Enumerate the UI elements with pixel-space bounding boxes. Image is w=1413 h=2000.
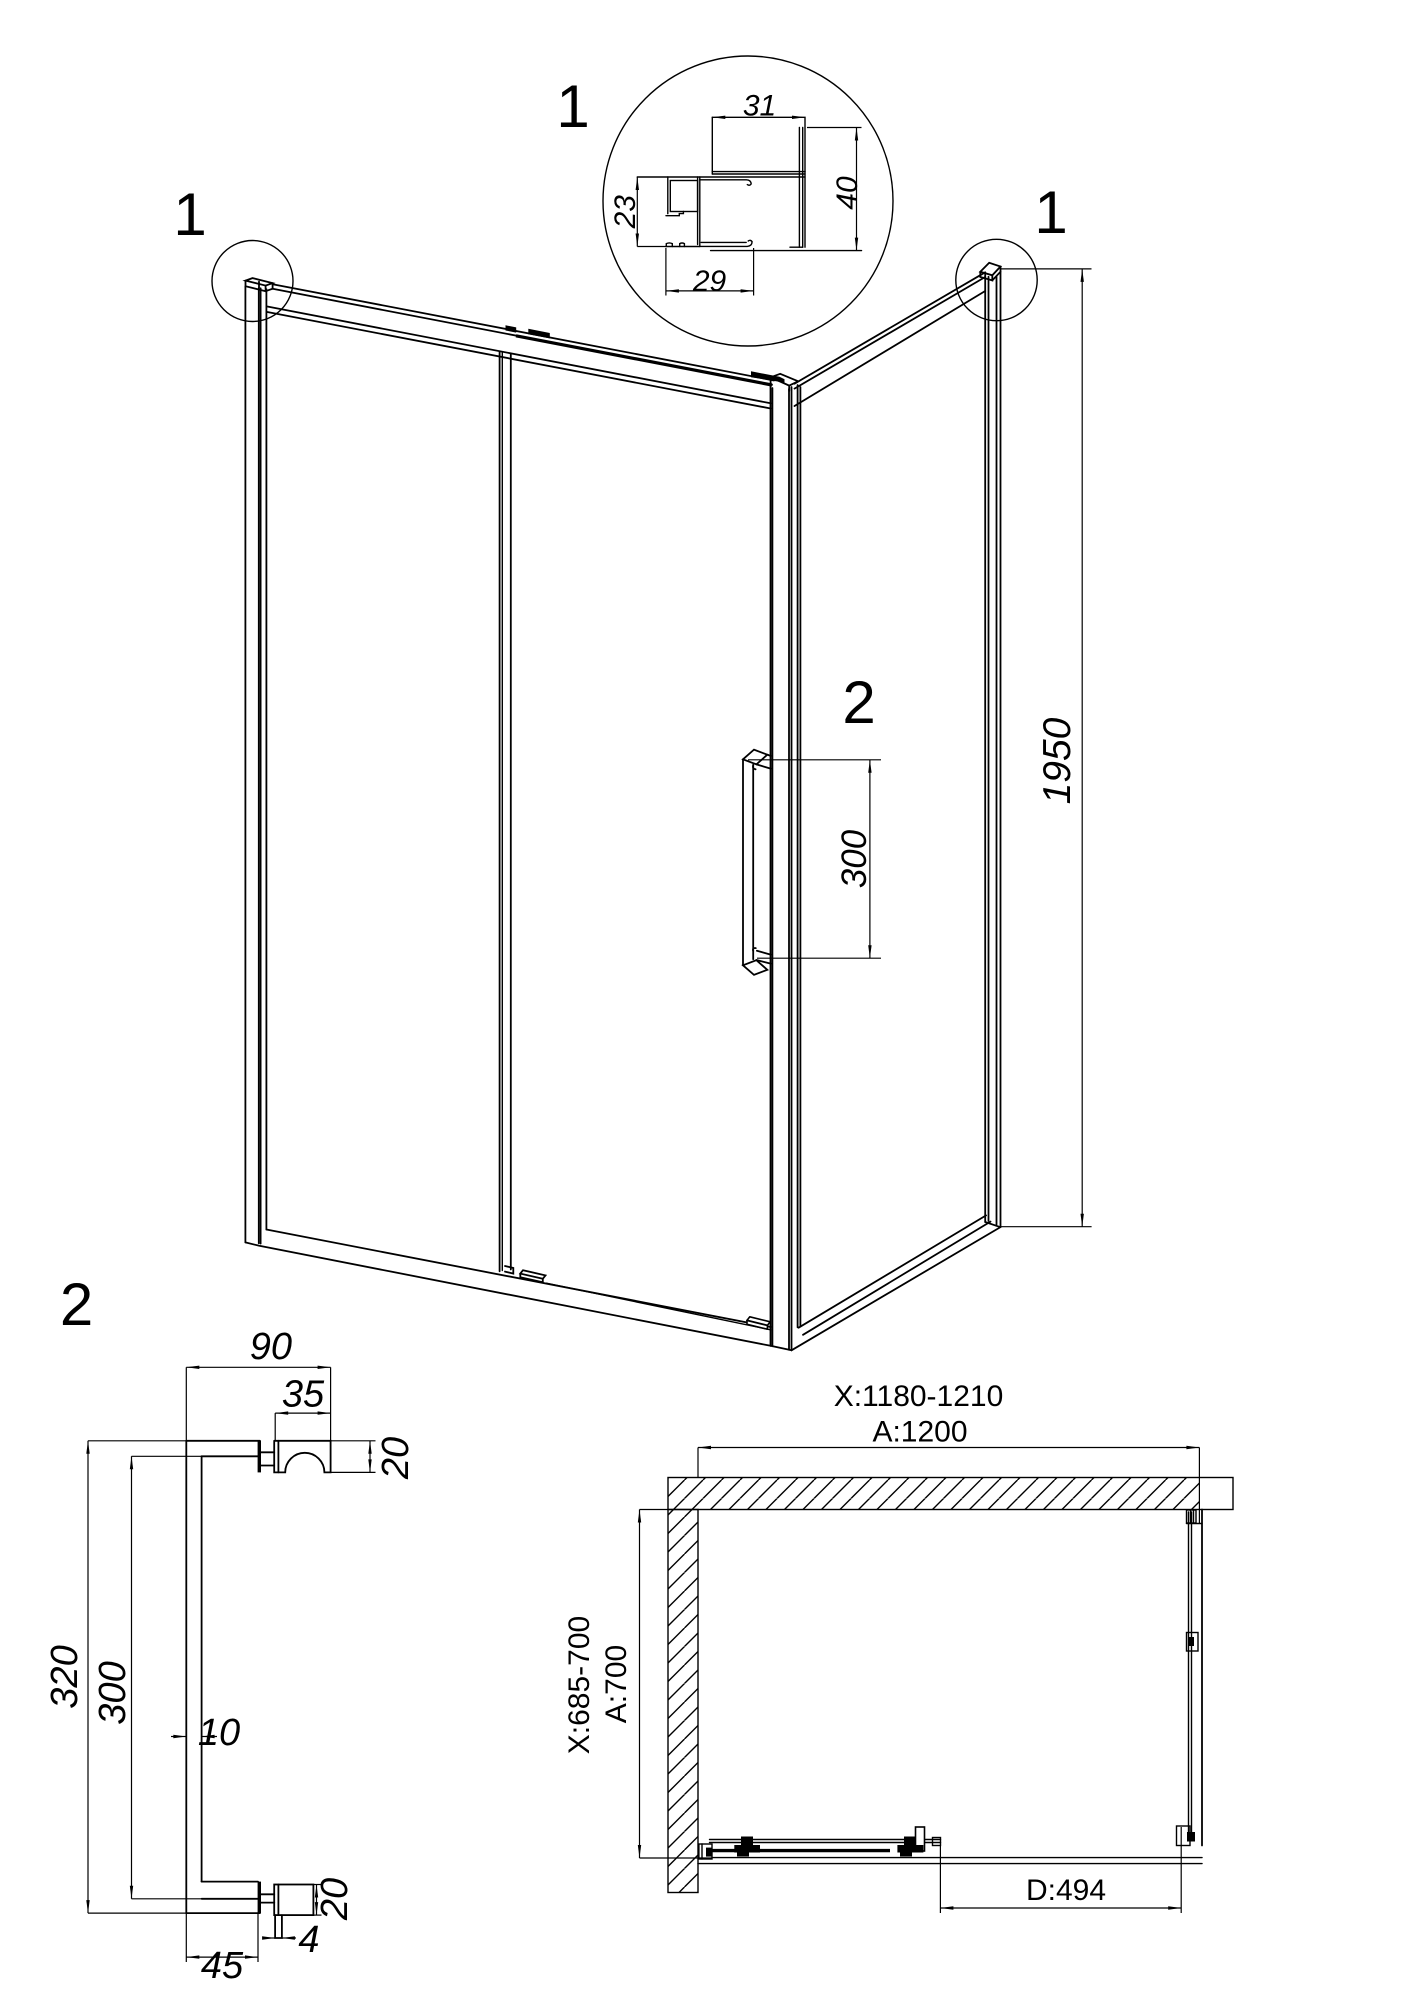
- svg-text:29: 29: [692, 265, 727, 298]
- svg-text:1: 1: [556, 73, 589, 140]
- svg-text:1950: 1950: [1036, 717, 1079, 804]
- svg-text:2: 2: [60, 1271, 93, 1338]
- svg-text:4: 4: [298, 1919, 319, 1961]
- svg-text:23: 23: [609, 195, 642, 230]
- svg-text:300: 300: [835, 829, 874, 888]
- svg-text:300: 300: [92, 1661, 134, 1724]
- svg-text:A:700: A:700: [600, 1645, 633, 1723]
- svg-text:1: 1: [173, 181, 206, 248]
- svg-text:X:685-700: X:685-700: [563, 1616, 596, 1754]
- svg-text:40: 40: [831, 176, 864, 210]
- svg-text:35: 35: [282, 1374, 325, 1416]
- svg-text:20: 20: [375, 1437, 417, 1480]
- svg-text:A:1200: A:1200: [872, 1416, 967, 1449]
- svg-text:1: 1: [1034, 179, 1067, 246]
- svg-text:45: 45: [201, 1945, 244, 1987]
- svg-text:2: 2: [842, 669, 875, 736]
- svg-text:90: 90: [250, 1326, 292, 1368]
- svg-text:10: 10: [198, 1712, 240, 1754]
- svg-text:X:1180-1210: X:1180-1210: [834, 1380, 1004, 1413]
- svg-text:D:494: D:494: [1026, 1874, 1106, 1907]
- svg-text:20: 20: [314, 1878, 356, 1921]
- svg-text:320: 320: [44, 1645, 86, 1708]
- svg-text:31: 31: [743, 90, 776, 123]
